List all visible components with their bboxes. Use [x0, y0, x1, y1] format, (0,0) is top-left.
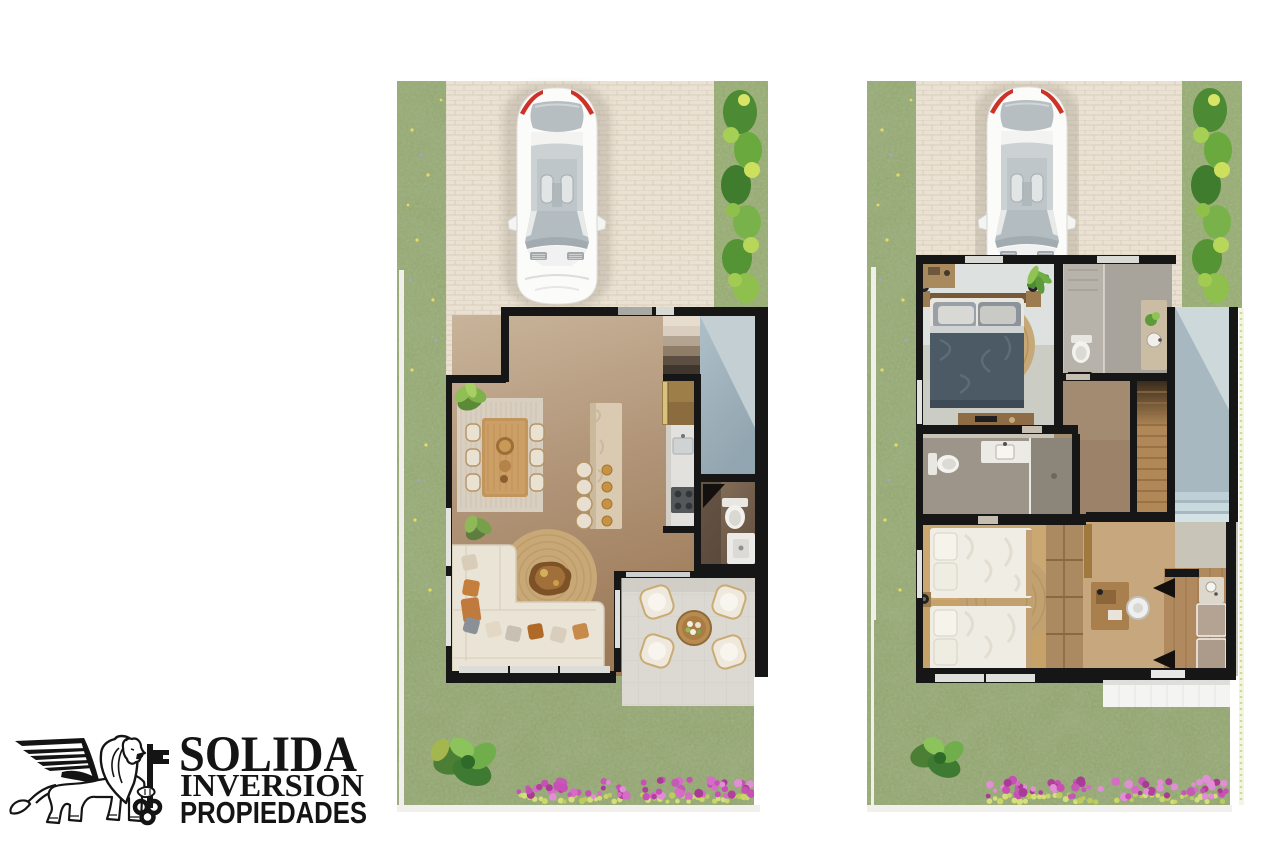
svg-text:PROPIEDADES: PROPIEDADES: [180, 795, 367, 830]
